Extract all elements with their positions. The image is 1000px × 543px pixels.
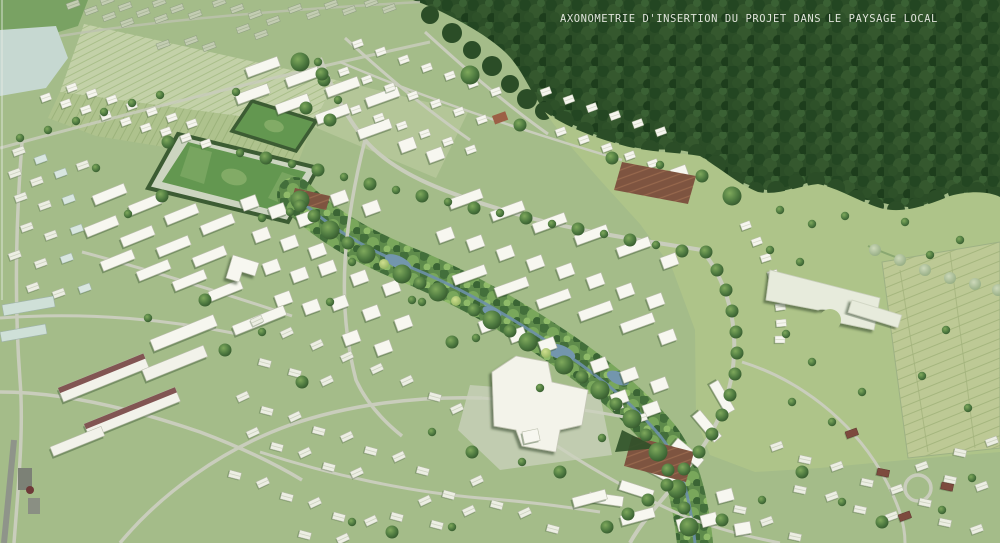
caption-title: AXONOMETRIE D'INSERTION DU PROJET DANS L… [560, 13, 938, 25]
axonometric-rendering: AXONOMETRIE D'INSERTION DU PROJET DANS L… [0, 0, 1000, 543]
rendering-canvas: AXONOMETRIE D'INSERTION DU PROJET DANS L… [0, 0, 1000, 543]
